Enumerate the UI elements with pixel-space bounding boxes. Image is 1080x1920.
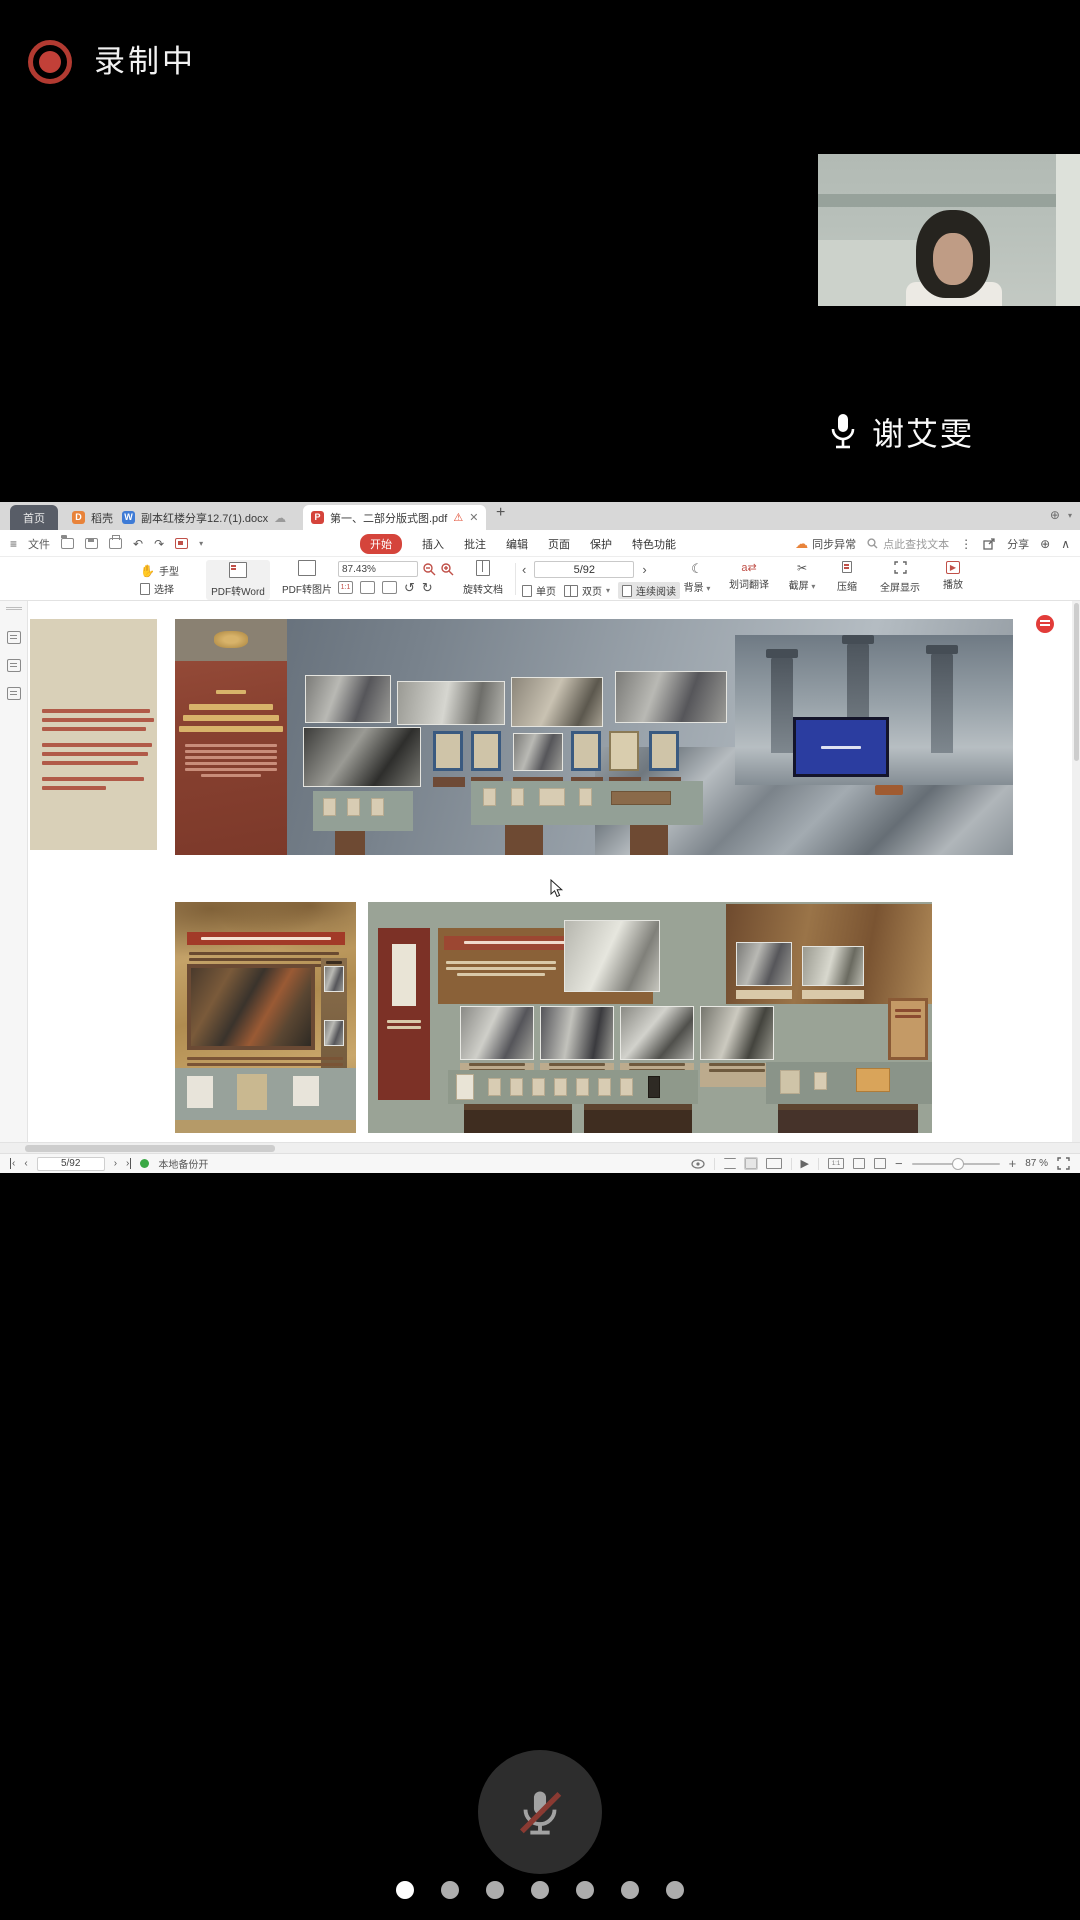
hand-label: 手型 [159, 563, 179, 578]
scrollbar-thumb[interactable] [25, 1145, 275, 1152]
dot[interactable] [531, 1881, 549, 1899]
zoom-slider-knob[interactable] [952, 1158, 964, 1170]
play-slideshow-icon[interactable]: ▶ [801, 1157, 809, 1170]
wps-activity-badge[interactable] [1036, 615, 1054, 633]
rotate-right-icon[interactable]: ↻ [422, 581, 433, 594]
compress-button[interactable]: 压缩 [830, 561, 864, 593]
pdf-to-word-icon [229, 562, 247, 578]
select-label: 选择 [154, 581, 174, 596]
chevron-down-icon: ▾ [606, 586, 610, 595]
tab-word-document[interactable]: W 副本红楼分享12.7(1).docx ☁ [114, 505, 294, 530]
document-exhibit [187, 1076, 213, 1108]
rotate-document-label: 旋转文档 [458, 581, 508, 596]
rotate-document-button[interactable]: 旋转文档 [458, 560, 508, 596]
revolution-painting [187, 964, 315, 1050]
double-page-label: 双页 [582, 583, 602, 598]
screenshot-label: 截屏 [789, 581, 809, 592]
fullscreen-icon[interactable] [1057, 1157, 1070, 1170]
vertical-scrollbar[interactable] [1072, 601, 1080, 1142]
caption-bar [433, 777, 465, 787]
wps-status-bar: ‹ ‹ 5/92 › › 本地备份开 ▶ 1:1 [0, 1153, 1080, 1173]
word-file-icon: W [122, 511, 135, 524]
photo-thumbnail [513, 733, 563, 771]
dot-active[interactable] [396, 1881, 414, 1899]
pdf-left-panel [0, 601, 28, 1142]
sync-status[interactable]: ☁ 同步异常 [795, 536, 856, 552]
pdf-document-area[interactable] [0, 601, 1080, 1142]
recording-indicator: 录制中 [28, 40, 196, 84]
hand-icon: ✋ [140, 565, 155, 577]
dot[interactable] [666, 1881, 684, 1899]
pdf-to-image-button[interactable]: PDF转图片 [276, 560, 338, 596]
continuous-reading-button[interactable]: 连续阅读 [618, 582, 680, 599]
exhibition-wall-render-top [175, 619, 1013, 855]
play-icon: ▶ [946, 561, 960, 574]
ribbon-tab-comment[interactable]: 批注 [464, 536, 486, 552]
eye-protect-icon[interactable] [691, 1159, 705, 1169]
tab-home[interactable]: 首页 [10, 505, 58, 530]
select-icon [140, 583, 150, 595]
redo-icon[interactable]: ↷ [154, 538, 164, 550]
file-menu[interactable]: 文件 [28, 536, 50, 552]
tab-home-label: 首页 [23, 510, 45, 526]
single-page-label: 单页 [536, 583, 556, 598]
select-tool[interactable]: 选择 [140, 581, 174, 596]
framed-document [571, 731, 601, 771]
pdf-to-image-label: PDF转图片 [276, 581, 338, 596]
carousel-dots [0, 1881, 1080, 1899]
outline-panel-icon[interactable] [7, 631, 21, 644]
single-page-button[interactable]: 单页 [522, 583, 556, 598]
translate-icon: a⇄ [741, 562, 756, 574]
next-page-icon[interactable]: › [114, 1158, 117, 1169]
document-exhibit [609, 731, 639, 771]
background-button[interactable]: ☾ 背景 ▾ [678, 561, 716, 594]
fullscreen-icon [894, 561, 907, 574]
gold-emblem [214, 631, 248, 648]
fit-width-icon[interactable] [360, 581, 375, 594]
search-icon [867, 538, 878, 549]
cloud-sync-icon: ☁ [274, 511, 286, 525]
translate-button[interactable]: a⇄ 划词翻译 [726, 561, 772, 591]
zoom-percent-label[interactable]: 87 % [1025, 1158, 1048, 1169]
microphone-icon [830, 413, 856, 451]
ribbon-tab-protect[interactable]: 保护 [590, 536, 612, 552]
zoom-input[interactable] [338, 561, 418, 577]
pdf-page-text-panel [30, 619, 157, 850]
microphone-muted-icon [511, 1783, 569, 1841]
page-number-input[interactable] [534, 561, 634, 578]
section-title-panel [175, 619, 287, 855]
double-page-icon [564, 585, 578, 597]
pedestal [630, 825, 668, 855]
fit-page-icon[interactable] [382, 581, 397, 594]
actual-size-icon[interactable]: 1:1 [828, 1158, 844, 1169]
zoom-slider[interactable] [912, 1163, 1000, 1165]
fit-width-icon[interactable] [853, 1158, 865, 1169]
chevron-down-icon[interactable]: ▾ [199, 539, 203, 548]
find-text-box[interactable]: 点此查找文本 [867, 536, 949, 552]
double-page-view-icon[interactable] [766, 1158, 782, 1169]
previous-page-icon[interactable]: ‹ [24, 1158, 27, 1169]
pedestal [335, 831, 365, 855]
screen-caption [875, 785, 903, 795]
wps-tab-bar: 首页 D 稻壳 W 副本红楼分享12.7(1).docx ☁ P 第一、二部分版… [0, 502, 1080, 530]
compress-icon [842, 561, 852, 573]
backup-status-label[interactable]: 本地备份开 [158, 1156, 208, 1171]
photo-thumbnail [305, 675, 391, 723]
share-icon[interactable] [983, 538, 996, 550]
framed-document [433, 731, 463, 771]
pdf-file-icon: P [311, 511, 324, 524]
display-case [766, 1062, 932, 1104]
next-page-icon[interactable]: › [642, 561, 646, 578]
framed-document [471, 731, 501, 771]
hanging-scroll [392, 944, 416, 1006]
exhibition-panel-bottom-right [368, 902, 932, 1133]
dot[interactable] [441, 1881, 459, 1899]
print-icon[interactable] [109, 538, 122, 549]
pdf-to-word-button[interactable]: PDF转Word [206, 560, 270, 600]
moon-icon: ☾ [691, 561, 703, 576]
rotate-left-icon[interactable]: ↺ [404, 581, 415, 594]
display-table [778, 1104, 918, 1133]
scissors-icon: ✂ [797, 561, 807, 575]
scrollbar-thumb[interactable] [1074, 603, 1079, 761]
comment-panel-icon[interactable] [7, 687, 21, 700]
hamburger-menu-icon[interactable]: ≡ [10, 538, 17, 550]
pdf-to-word-label: PDF转Word [206, 583, 270, 598]
building-photo [564, 920, 660, 992]
docer-icon: D [72, 511, 85, 524]
document-exhibit [237, 1074, 267, 1110]
background-shelf [818, 194, 1080, 207]
dot[interactable] [621, 1881, 639, 1899]
display-table [584, 1104, 692, 1133]
document-exhibit [293, 1076, 319, 1106]
last-page-icon[interactable]: › [126, 1158, 131, 1169]
share-label[interactable]: 分享 [1007, 536, 1029, 552]
display-case [448, 1070, 698, 1104]
ribbon-tab-insert[interactable]: 插入 [422, 536, 444, 552]
backup-status-icon [140, 1159, 149, 1168]
shared-screen-wps-window: 首页 D 稻壳 W 副本红楼分享12.7(1).docx ☁ P 第一、二部分版… [0, 502, 1080, 1173]
ribbon-tab-start[interactable]: 开始 [360, 534, 402, 554]
play-button[interactable]: ▶ 播放 [936, 561, 970, 591]
chevron-down-icon[interactable]: ▾ [1068, 511, 1072, 520]
fit-page-icon[interactable] [874, 1158, 886, 1169]
single-page-icon [522, 585, 532, 597]
collapse-ribbon-icon[interactable]: ∧ [1061, 538, 1070, 550]
ribbon-tabs: 开始 插入 批注 编辑 页面 保护 特色功能 [360, 530, 676, 557]
actual-size-icon[interactable]: 1:1 [338, 581, 353, 594]
warning-icon: ⚠ [453, 511, 463, 524]
tab-docer[interactable]: D 稻壳 [64, 505, 121, 530]
certificate-exhibit [888, 998, 928, 1060]
fullscreen-label: 全屏显示 [872, 579, 928, 594]
speaker-name: 谢艾雯 [872, 409, 974, 455]
continuous-reading-label: 连续阅读 [636, 583, 676, 598]
ribbon-tab-page[interactable]: 页面 [548, 536, 570, 552]
compress-label: 压缩 [830, 578, 864, 593]
previous-page-icon[interactable]: ‹ [522, 561, 526, 578]
recording-label: 录制中 [94, 40, 196, 84]
ribbon-tab-features[interactable]: 特色功能 [632, 536, 676, 552]
photo-card [700, 1006, 774, 1087]
panel-title-bar [187, 932, 345, 945]
webcam-video[interactable] [818, 154, 1080, 306]
exhibition-panel-bottom-left [175, 902, 356, 1133]
fullscreen-button[interactable]: 全屏显示 [872, 561, 928, 594]
play-label: 播放 [936, 576, 970, 591]
close-tab-icon[interactable]: ✕ [469, 511, 478, 524]
cloud-error-icon: ☁ [795, 536, 808, 552]
undo-icon[interactable]: ↶ [133, 538, 143, 550]
display-table [464, 1104, 572, 1133]
photo-thumbnail [303, 727, 421, 787]
zoom-out-icon[interactable] [423, 563, 436, 576]
dot[interactable] [576, 1881, 594, 1899]
format-painter-icon[interactable] [175, 538, 188, 549]
active-speaker-label: 谢艾雯 [830, 406, 974, 458]
zoom-out-icon[interactable]: − [895, 1156, 903, 1171]
wps-menu-bar: ≡ 文件 ↶ ↷ ▾ 开始 插入 批注 编辑 页面 保护 特色功能 [0, 530, 1080, 557]
thumbnail-panel-icon[interactable] [7, 659, 21, 672]
open-file-icon[interactable] [61, 538, 74, 549]
zoom-in-icon[interactable] [441, 563, 454, 576]
pdf-to-image-icon [298, 560, 316, 576]
photo-thumbnail [397, 681, 505, 725]
account-icon[interactable]: ⊕ [1050, 508, 1060, 522]
sync-status-label: 同步异常 [812, 536, 856, 552]
first-page-icon[interactable]: ‹ [10, 1158, 15, 1169]
background-label: 背景 [684, 583, 704, 594]
more-options-icon[interactable]: ⋮ [960, 538, 972, 550]
tab-docer-label: 稻壳 [91, 510, 113, 526]
red-scroll-panel [378, 928, 430, 1100]
zoom-in-icon[interactable]: + [1009, 1156, 1017, 1171]
find-placeholder: 点此查找文本 [883, 536, 949, 552]
tab-pdf-label: 第一、二部分版式图.pdf [330, 510, 447, 526]
interior-photo-collage [726, 904, 932, 1004]
continuous-view-icon[interactable] [724, 1158, 736, 1169]
framed-document [649, 731, 679, 771]
translate-label: 划词翻译 [726, 576, 772, 591]
display-board [471, 781, 703, 825]
new-tab-button[interactable]: + [496, 504, 505, 522]
wps-toolbar: ✋ 手型 选择 PDF转Word PDF转图片 [0, 557, 1080, 601]
horizontal-scrollbar[interactable] [0, 1142, 1080, 1153]
display-board [313, 791, 413, 831]
continuous-reading-icon [622, 585, 632, 597]
pedestal [505, 825, 543, 855]
status-page-indicator[interactable]: 5/92 [37, 1157, 105, 1171]
photo-thumbnail [511, 677, 603, 727]
single-page-view-icon[interactable] [745, 1158, 757, 1169]
ribbon-tab-edit[interactable]: 编辑 [506, 536, 528, 552]
rotate-document-icon [476, 560, 490, 576]
double-page-button[interactable]: 双页 ▾ [564, 583, 610, 598]
hand-tool[interactable]: ✋ 手型 [140, 563, 179, 578]
microphone-mute-button[interactable] [478, 1750, 602, 1874]
video-screen [793, 717, 889, 777]
photo-thumbnail [615, 671, 727, 723]
tab-word-label: 副本红楼分享12.7(1).docx [141, 510, 268, 526]
dot[interactable] [486, 1881, 504, 1899]
record-icon [28, 40, 72, 84]
background-window [1056, 154, 1080, 306]
save-icon[interactable] [85, 538, 98, 549]
participant-face [933, 233, 973, 285]
mouse-cursor [550, 879, 566, 899]
artifact-shelf [175, 1068, 356, 1120]
panel-collapse-handle[interactable] [6, 607, 22, 610]
tab-pdf-document-active[interactable]: P 第一、二部分版式图.pdf ⚠ ✕ [303, 505, 486, 530]
apps-icon[interactable]: ⊕ [1040, 538, 1050, 550]
screenshot-button[interactable]: ✂ 截屏 ▾ [782, 561, 822, 592]
meeting-screen: 录制中 谢艾雯 首页 D 稻壳 W [0, 0, 1080, 1920]
